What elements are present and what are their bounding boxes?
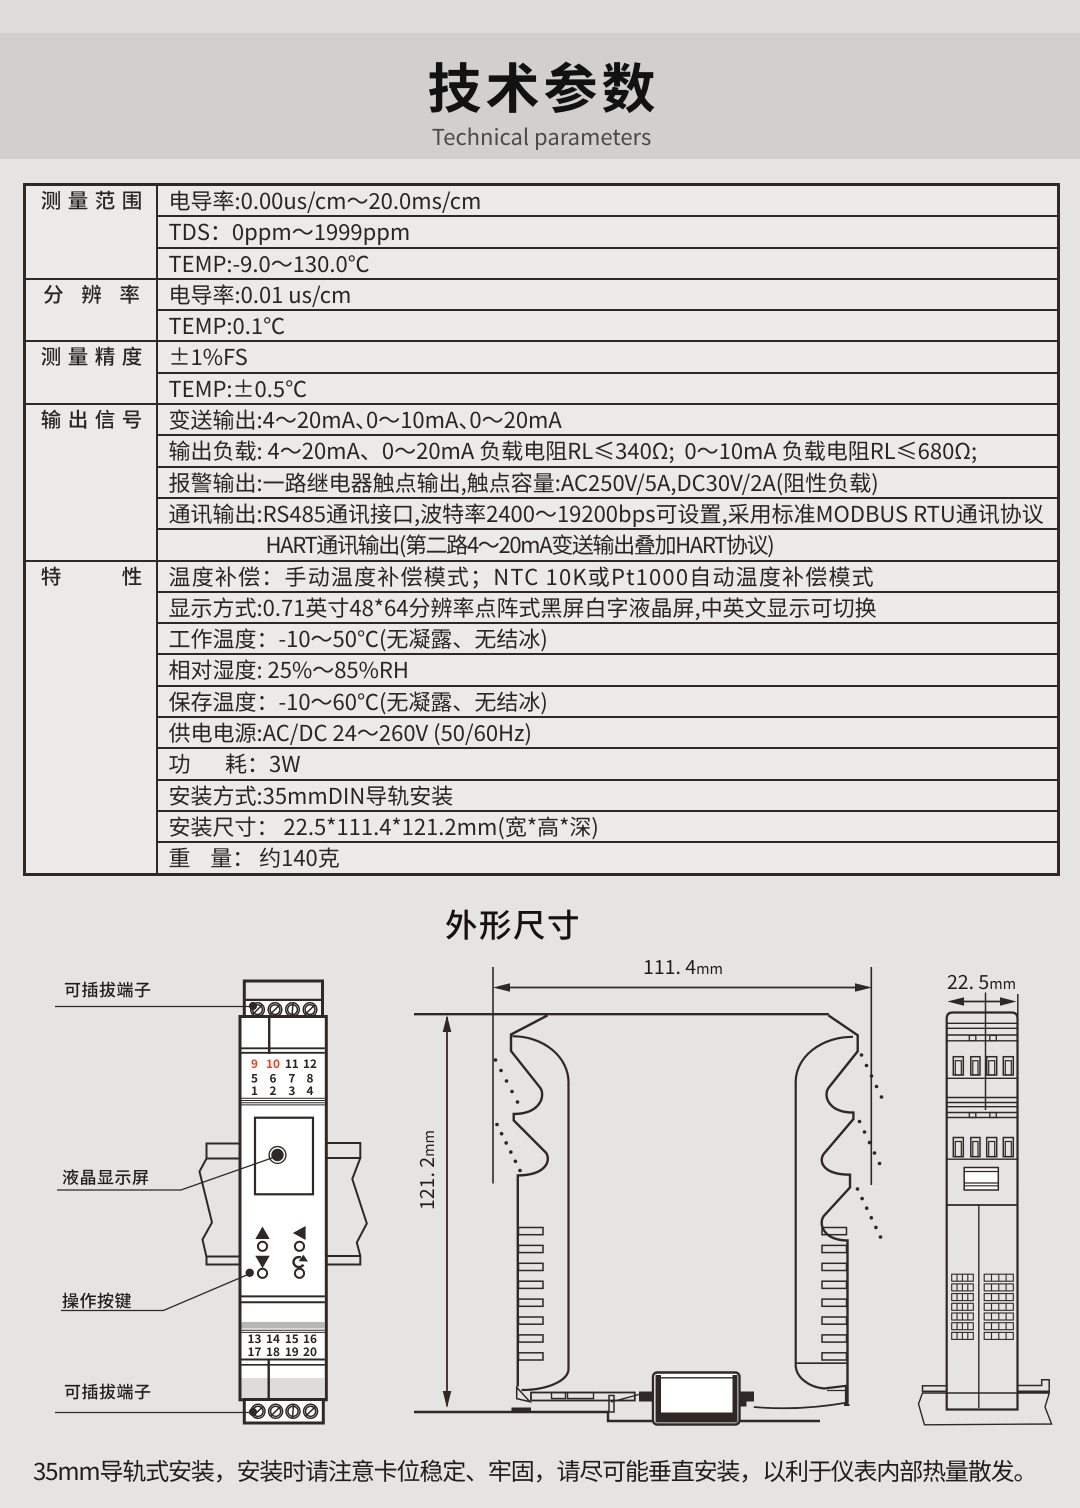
svg-text:22. 5mm: 22. 5mm <box>947 966 1016 995</box>
svg-text:19: 19 <box>285 1343 299 1360</box>
svg-text:17: 17 <box>248 1343 262 1360</box>
svg-text:3: 3 <box>288 1082 295 1099</box>
svg-text:液晶显示屏: 液晶显示屏 <box>62 1164 150 1189</box>
svg-text:111. 4mm: 111. 4mm <box>643 951 723 980</box>
svg-text:可插拔端子: 可插拔端子 <box>64 1378 152 1403</box>
svg-text:121. 2mm: 121. 2mm <box>411 1130 440 1210</box>
svg-text:可插拔端子: 可插拔端子 <box>64 976 152 1001</box>
svg-text:1: 1 <box>251 1082 258 1099</box>
svg-text:20: 20 <box>303 1343 317 1360</box>
svg-text:18: 18 <box>266 1343 280 1360</box>
svg-text:操作按键: 操作按键 <box>62 1287 132 1312</box>
svg-text:4: 4 <box>307 1082 314 1099</box>
svg-text:2: 2 <box>270 1082 277 1099</box>
